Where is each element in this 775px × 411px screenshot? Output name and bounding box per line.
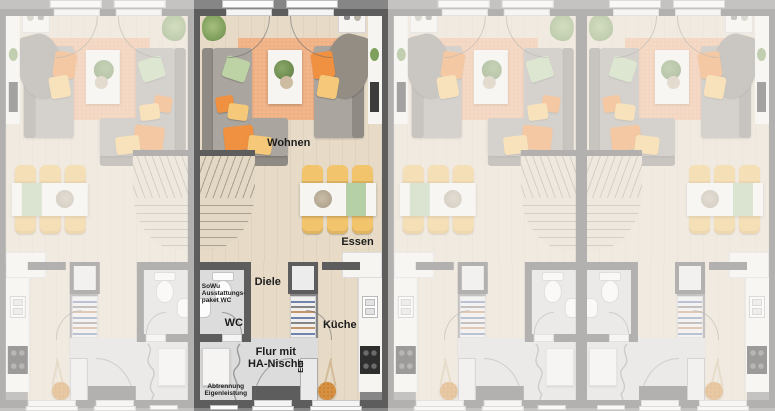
partition-line [615, 342, 635, 402]
dining-chair [452, 165, 473, 184]
wall [581, 262, 637, 270]
door-step [252, 406, 294, 411]
pillow-yellow [614, 103, 636, 122]
window-sill [210, 405, 238, 410]
table-runner [733, 183, 753, 216]
wash-basin [564, 298, 576, 318]
dining-chair [452, 215, 473, 234]
dining-chair [427, 215, 448, 234]
wall [769, 9, 775, 411]
sink-bowl [752, 299, 762, 306]
patio-door [613, 9, 659, 16]
corner-sofa-back [561, 48, 573, 166]
dining-chair [352, 215, 373, 234]
door-step [413, 406, 465, 411]
pillow-yellow [316, 74, 340, 99]
door-step [310, 406, 362, 411]
window-sill [114, 0, 166, 8]
unit-2: Wohnen Essen Diele WC Küche Flur mit HA-… [194, 0, 388, 411]
sink-bowl [752, 308, 762, 315]
potted-plant [162, 14, 186, 42]
hall-closet-inner [74, 266, 96, 290]
door-step [639, 406, 681, 411]
units-row: Wohnen Essen Diele WC Küche Flur mit HA-… [0, 0, 775, 411]
staircase [586, 156, 642, 250]
partition-line [527, 342, 547, 402]
dried-flower-decor [439, 382, 457, 400]
dining-chair [15, 165, 36, 184]
toilet [156, 280, 174, 303]
table-centerpiece [56, 190, 74, 208]
dried-flower-decor [318, 382, 336, 400]
dining-chair [402, 165, 423, 184]
pillow-yellow [48, 74, 72, 99]
table-runner [22, 183, 42, 216]
patio-door [288, 9, 334, 16]
wall [137, 262, 144, 342]
unit-4 [581, 0, 775, 411]
wall [194, 9, 200, 411]
wall [244, 262, 251, 342]
staircase [199, 156, 255, 250]
wall [322, 262, 360, 270]
pillow-yellow [703, 74, 727, 99]
wall [133, 150, 189, 156]
window-sill [50, 0, 102, 8]
patio-door [503, 9, 549, 16]
wc-door [222, 334, 242, 342]
floorplan-canvas: Wohnen Essen Diele WC Küche Flur mit HA-… [0, 0, 775, 411]
small-plant [370, 48, 379, 61]
wall [194, 262, 250, 270]
pillow-yellow [139, 103, 161, 122]
wall [199, 150, 255, 156]
entry-wardrobe [545, 348, 573, 386]
potted-plant [202, 14, 226, 42]
wall [28, 262, 66, 270]
sink-bowl [400, 299, 410, 306]
hall-closet-inner [461, 266, 483, 290]
dining-chair [302, 165, 323, 184]
dining-chair [739, 215, 760, 234]
unit-graphics [194, 0, 388, 411]
potted-plant [549, 14, 573, 42]
tv [396, 82, 405, 112]
hall-closet-inner [679, 266, 701, 290]
table-bowl [482, 76, 495, 89]
dining-chair [327, 165, 348, 184]
sink-bowl [13, 299, 23, 306]
dining-chair [40, 215, 61, 234]
diele-floor [98, 262, 138, 342]
table-bowl [95, 76, 108, 89]
dried-flower-decor [52, 382, 70, 400]
toilet [543, 280, 561, 303]
dining-chair [689, 215, 710, 234]
stair-treads [133, 198, 189, 250]
unit-graphics [388, 0, 582, 411]
door-step [26, 406, 78, 411]
window-sill [286, 0, 338, 8]
table-centerpiece [314, 190, 332, 208]
elt-shaft [300, 358, 318, 402]
dining-chair [714, 215, 735, 234]
sink-bowl [365, 308, 375, 315]
small-plant [396, 48, 405, 61]
cooktop [360, 346, 380, 374]
patio-door [226, 9, 272, 16]
dining-chair [40, 165, 61, 184]
table-runner [409, 183, 429, 216]
hall-closet-inner [292, 266, 314, 290]
wall [388, 9, 394, 411]
tv [9, 82, 18, 112]
unit-1 [0, 0, 194, 411]
dining-chair [302, 215, 323, 234]
patio-door [675, 9, 721, 16]
entry-wardrobe [158, 348, 186, 386]
wash-basin [199, 298, 211, 318]
wash-basin [586, 298, 598, 318]
window-sill [501, 0, 553, 8]
tv [757, 82, 766, 112]
small-plant [9, 48, 18, 61]
table-centerpiece [443, 190, 461, 208]
dining-chair [402, 215, 423, 234]
wall [524, 262, 531, 342]
pillow-yellow [436, 74, 460, 99]
door-step [94, 406, 136, 411]
patio-door [441, 9, 487, 16]
patio-door [116, 9, 162, 16]
window-sill [222, 0, 274, 8]
corner-sofa-back [174, 48, 186, 166]
tv [370, 82, 379, 112]
toilet [214, 280, 232, 303]
partition-line [228, 342, 248, 402]
stair-winders [586, 156, 642, 198]
dining-chair [327, 215, 348, 234]
window-sill [609, 0, 661, 8]
dining-chair [427, 165, 448, 184]
toilet [601, 280, 619, 303]
cooktop [8, 346, 28, 374]
diele-floor [637, 262, 677, 342]
stair-winders [199, 156, 255, 198]
sink-bowl [13, 308, 23, 315]
stair-treads [520, 198, 576, 250]
window-sill [673, 0, 725, 8]
stair-treads [586, 198, 642, 250]
potted-plant [589, 14, 613, 42]
patio-door [54, 9, 100, 16]
partition-line [140, 342, 160, 402]
wall [709, 262, 747, 270]
elt-shaft [457, 358, 475, 402]
pillow-yellow [227, 103, 249, 122]
entry-wardrobe [202, 348, 230, 386]
elt-shaft [70, 358, 88, 402]
wall [415, 262, 453, 270]
wall [525, 262, 581, 270]
elt-shaft [687, 358, 705, 402]
wall [520, 150, 576, 156]
table-runner [346, 183, 366, 216]
window-sill [537, 405, 565, 410]
wc-door [609, 334, 629, 342]
door-step [697, 406, 749, 411]
unit-3 [388, 0, 582, 411]
pillow-yellow [526, 103, 548, 122]
wall [581, 9, 587, 411]
cooktop [747, 346, 767, 374]
unit-graphics [0, 0, 194, 411]
staircase [520, 156, 576, 250]
entry-wardrobe [589, 348, 617, 386]
unit-graphics [581, 0, 775, 411]
diele-floor [485, 262, 525, 342]
sink-bowl [365, 299, 375, 306]
wall [631, 262, 638, 342]
cooktop [395, 346, 415, 374]
window-sill [597, 405, 625, 410]
diele-floor [250, 262, 290, 342]
dining-chair [739, 165, 760, 184]
table-bowl [280, 76, 293, 89]
stair-winders [520, 156, 576, 198]
dining-chair [65, 165, 86, 184]
window-sill [150, 405, 178, 410]
wall [0, 9, 6, 411]
stair-winders [133, 156, 189, 198]
dining-chair [714, 165, 735, 184]
staircase [133, 156, 189, 250]
window-sill [437, 0, 489, 8]
stair-treads [199, 198, 255, 250]
sink-bowl [400, 308, 410, 315]
dining-chair [15, 215, 36, 234]
dining-chair [352, 165, 373, 184]
wall [586, 150, 642, 156]
door-step [481, 406, 523, 411]
wc-door [146, 334, 166, 342]
wc-door [533, 334, 553, 342]
corner-sofa-back [202, 48, 214, 166]
dining-chair [689, 165, 710, 184]
dining-chair [65, 215, 86, 234]
wall [138, 262, 194, 270]
